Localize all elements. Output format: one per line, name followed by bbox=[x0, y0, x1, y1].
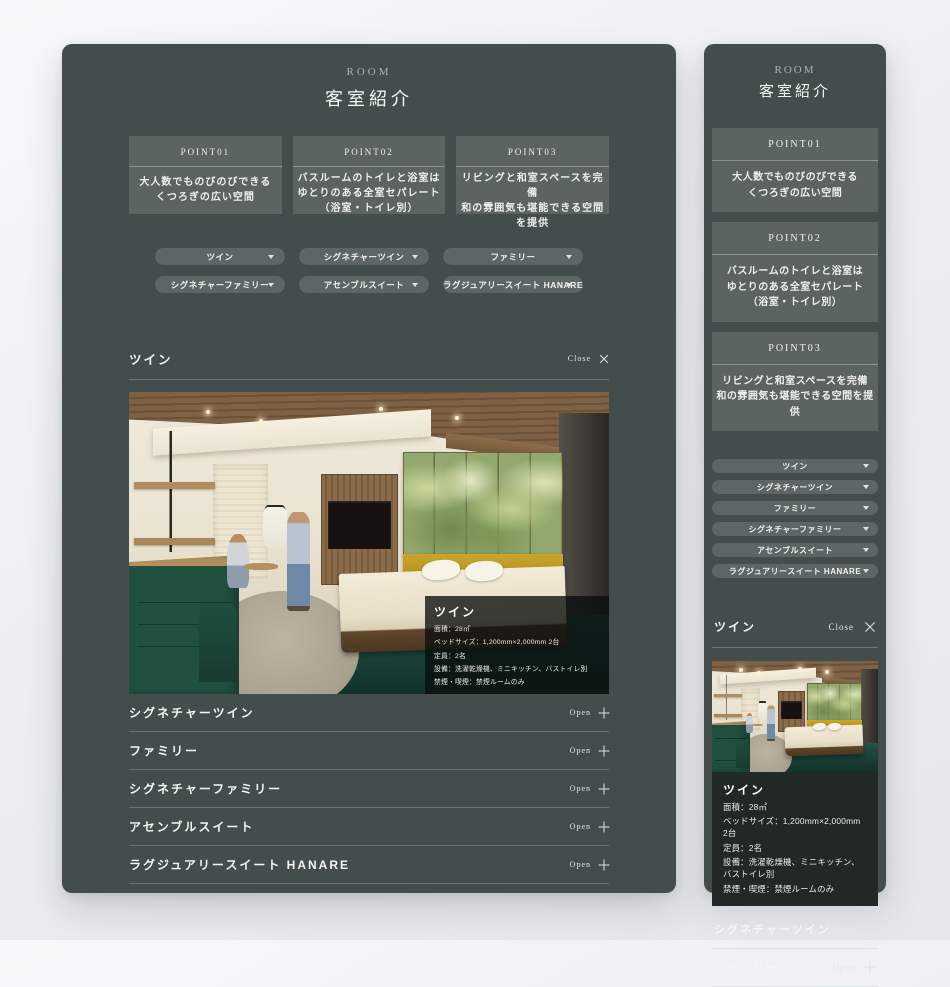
room-spec-facilities: 設備：洗濯乾燥機、ミニキッチン、バストイレ別 bbox=[723, 857, 867, 880]
point-card-03: POINT03 リビングと和室スペースを完備 和の雰囲気も堪能できる空間を提供 bbox=[456, 136, 609, 214]
point-label: POINT03 bbox=[712, 332, 878, 365]
point-body: リビングと和室スペースを完備 和の雰囲気も堪能できる空間を提供 bbox=[712, 365, 878, 432]
open-button[interactable]: Open bbox=[833, 961, 877, 973]
point-label: POINT01 bbox=[129, 136, 282, 167]
room-button-label: ラグジュアリースイート HANARE bbox=[729, 566, 861, 577]
room-button-label: ツイン bbox=[782, 461, 808, 472]
plus-icon bbox=[598, 707, 609, 718]
photo-sliding-door bbox=[861, 669, 878, 747]
accordion-row-signature-twin[interactable]: シグネチャーツイン Open bbox=[129, 694, 609, 732]
open-button[interactable]: Open bbox=[570, 821, 609, 832]
accordion-list: シグネチャーツイン Open ファミリー Open bbox=[712, 911, 878, 987]
room-info-box: ツイン 面積：28㎡ ベッドサイズ：1,200mm×2,000mm 2台 定員：… bbox=[712, 772, 878, 906]
open-button[interactable]: Open bbox=[570, 707, 609, 718]
room-button-label: ファミリー bbox=[774, 503, 817, 514]
point-text-line: 和の雰囲気も堪能できる空間を提供 bbox=[458, 201, 607, 231]
room-info-overlay: ツイン 面積：28㎡ ベッドサイズ：1,200mm×2,000mm 2台 定員：… bbox=[425, 596, 609, 694]
room-button-assemble-suite[interactable]: アセンブルスイート bbox=[712, 543, 878, 557]
photo-sliding-door bbox=[559, 413, 609, 624]
room-anchor-buttons: ツイン シグネチャーツイン ファミリー シグネチャーファミリー アセンブルスイー… bbox=[712, 459, 878, 578]
open-label: Open bbox=[570, 822, 591, 831]
point-text-line: リビングと和室スペースを完備 bbox=[716, 374, 874, 390]
divider bbox=[712, 647, 878, 648]
plus-icon bbox=[864, 961, 876, 973]
section-label: ROOM bbox=[712, 64, 878, 76]
accordion-row-signature-twin[interactable]: シグネチャーツイン Open bbox=[712, 911, 878, 949]
chevron-down-icon bbox=[863, 506, 869, 510]
accordion-row-family[interactable]: ファミリー Open bbox=[712, 949, 878, 987]
room-button-label: ファミリー bbox=[490, 251, 535, 263]
accordion-title: シグネチャーツイン bbox=[714, 921, 831, 937]
point-card-02: POINT02 バスルームのトイレと浴室は ゆとりのある全室セパレート （浴室・… bbox=[712, 222, 878, 322]
room-spec-bed: ベッドサイズ：1,200mm×2,000mm 2台 bbox=[434, 636, 600, 646]
point-text-line: ゆとりのある全室セパレート bbox=[716, 280, 874, 296]
section-label: ROOM bbox=[129, 66, 609, 78]
accordion-row-signature-family[interactable]: シグネチャーファミリー Open bbox=[129, 770, 609, 808]
room-button-label: シグネチャーツイン bbox=[757, 482, 833, 493]
point-text-line: 大人数でものびのびできる bbox=[131, 175, 280, 190]
room-name: ツイン bbox=[434, 603, 600, 620]
room-photo: ツイン 面積：28㎡ ベッドサイズ：1,200mm×2,000mm 2台 定員：… bbox=[129, 392, 609, 694]
photo-downlight bbox=[259, 419, 263, 423]
accordion-title: ラグジュアリースイート HANARE bbox=[129, 856, 350, 873]
accordion-row-luxury-suite-hanare[interactable]: ラグジュアリースイート HANARE Open bbox=[129, 846, 609, 884]
accordion-row-family[interactable]: ファミリー Open bbox=[129, 732, 609, 770]
chevron-down-icon bbox=[412, 255, 418, 259]
room-spec-smoking: 禁煙・喫煙：禁煙ルームのみ bbox=[723, 884, 867, 895]
chevron-down-icon bbox=[863, 485, 869, 489]
photo-downlight bbox=[825, 670, 829, 674]
point-text-line: （浴室・トイレ別） bbox=[295, 201, 444, 216]
point-label: POINT02 bbox=[293, 136, 446, 167]
room-photo-illustration bbox=[712, 661, 878, 772]
room-button-signature-twin[interactable]: シグネチャーツイン bbox=[712, 480, 878, 494]
point-card-01: POINT01 大人数でものびのびできる くつろぎの広い空間 bbox=[712, 128, 878, 212]
plus-icon bbox=[598, 859, 609, 870]
close-label: Close bbox=[828, 622, 854, 632]
room-button-label: シグネチャーファミリー bbox=[749, 524, 842, 535]
accordion-title: ファミリー bbox=[129, 742, 199, 759]
accordion-title: シグネチャーファミリー bbox=[129, 780, 282, 797]
open-label: Open bbox=[833, 962, 857, 972]
accordion-list: シグネチャーツイン Open ファミリー Open シグネチャーファミリー Op… bbox=[129, 694, 609, 884]
accordion-header-twin-open[interactable]: ツイン Close bbox=[129, 349, 609, 368]
open-label: Open bbox=[570, 746, 591, 755]
photo-seated-person bbox=[227, 534, 248, 588]
room-spec-smoking: 禁煙・喫煙：禁煙ルームのみ bbox=[434, 676, 600, 686]
close-button[interactable]: Close bbox=[828, 620, 876, 633]
point-body: バスルームのトイレと浴室は ゆとりのある全室セパレート （浴室・トイレ別） bbox=[293, 167, 446, 222]
room-button-twin[interactable]: ツイン bbox=[712, 459, 878, 473]
room-button-family[interactable]: ファミリー bbox=[443, 248, 583, 265]
point-text-line: バスルームのトイレと浴室は bbox=[716, 264, 874, 280]
room-button-label: シグネチャーファミリー bbox=[171, 279, 269, 291]
close-button[interactable]: Close bbox=[568, 353, 609, 364]
accordion-header-twin-open[interactable]: ツイン Close bbox=[712, 618, 878, 635]
chevron-down-icon bbox=[863, 464, 869, 468]
accordion-title: ツイン bbox=[714, 618, 756, 635]
photo-standing-person bbox=[767, 705, 775, 742]
room-spec-capacity: 定員：2名 bbox=[723, 843, 867, 854]
point-body: 大人数でものびのびできる くつろぎの広い空間 bbox=[129, 167, 282, 214]
accordion-row-assemble-suite[interactable]: アセンブルスイート Open bbox=[129, 808, 609, 846]
close-icon bbox=[598, 353, 609, 364]
point-label: POINT03 bbox=[456, 136, 609, 167]
chevron-down-icon bbox=[863, 527, 869, 531]
room-photo bbox=[712, 661, 878, 772]
chevron-down-icon bbox=[566, 283, 572, 287]
room-button-assemble-suite[interactable]: アセンブルスイート bbox=[299, 276, 429, 293]
accordion-title: シグネチャーツイン bbox=[129, 704, 255, 721]
photo-downlight bbox=[798, 667, 802, 671]
close-label: Close bbox=[568, 354, 591, 363]
photo-hanging-shirt bbox=[758, 703, 766, 719]
desktop-room-section: ROOM 客室紹介 POINT01 大人数でものびのびできる くつろぎの広い空間… bbox=[62, 44, 676, 893]
close-icon bbox=[863, 620, 876, 633]
page-title: 客室紹介 bbox=[712, 80, 878, 101]
open-button[interactable]: Open bbox=[570, 859, 609, 870]
point-text-line: 和の雰囲気も堪能できる空間を提供 bbox=[716, 389, 874, 420]
photo-downlight bbox=[757, 671, 761, 675]
open-label: Open bbox=[833, 924, 857, 934]
photo-downlight bbox=[206, 410, 210, 414]
photo-seated-person bbox=[746, 713, 753, 733]
point-text-line: ゆとりのある全室セパレート bbox=[295, 186, 444, 201]
open-label: Open bbox=[570, 708, 591, 717]
section-header: ROOM 客室紹介 bbox=[712, 44, 878, 101]
photo-shelves bbox=[714, 675, 742, 719]
point-text-line: くつろぎの広い空間 bbox=[131, 190, 280, 205]
point-card-02: POINT02 バスルームのトイレと浴室は ゆとりのある全室セパレート （浴室・… bbox=[293, 136, 446, 214]
photo-shelves bbox=[134, 431, 216, 552]
photo-hanging-shirt bbox=[263, 507, 287, 549]
room-button-label: ラグジュアリースイート HANARE bbox=[443, 279, 583, 291]
room-button-signature-family[interactable]: シグネチャーファミリー bbox=[712, 522, 878, 536]
points-column: POINT01 大人数でものびのびできる くつろぎの広い空間 POINT02 バ… bbox=[712, 128, 878, 431]
divider bbox=[129, 379, 609, 380]
point-label: POINT01 bbox=[712, 128, 878, 161]
room-spec-facilities: 設備：洗濯乾燥機、ミニキッチン、バストイレ別 bbox=[434, 663, 600, 673]
room-name: ツイン bbox=[723, 781, 867, 798]
point-card-03: POINT03 リビングと和室スペースを完備 和の雰囲気も堪能できる空間を提供 bbox=[712, 332, 878, 432]
chevron-down-icon bbox=[268, 283, 274, 287]
room-button-label: ツイン bbox=[206, 251, 233, 263]
open-button[interactable]: Open bbox=[570, 783, 609, 794]
room-button-label: アセンブルスイート bbox=[324, 279, 405, 291]
room-button-label: シグネチャーツイン bbox=[324, 251, 405, 263]
point-text-line: リビングと和室スペースを完備 bbox=[458, 171, 607, 201]
point-body: バスルームのトイレと浴室は ゆとりのある全室セパレート （浴室・トイレ別） bbox=[712, 255, 878, 322]
accordion-title: アセンブルスイート bbox=[129, 818, 254, 835]
open-button[interactable]: Open bbox=[833, 923, 877, 935]
photo-art-panels bbox=[807, 683, 863, 721]
photo-side-table bbox=[244, 563, 278, 570]
chevron-down-icon bbox=[863, 548, 869, 552]
point-card-01: POINT01 大人数でものびのびできる くつろぎの広い空間 bbox=[129, 136, 282, 214]
photo-bench bbox=[199, 603, 237, 682]
section-header: ROOM 客室紹介 bbox=[129, 44, 609, 111]
plus-icon bbox=[598, 783, 609, 794]
plus-icon bbox=[598, 821, 609, 832]
photo-bench bbox=[736, 739, 749, 768]
point-text-line: バスルームのトイレと浴室は bbox=[295, 171, 444, 186]
chevron-down-icon bbox=[268, 255, 274, 259]
photo-tv-screen bbox=[781, 701, 803, 719]
points-row: POINT01 大人数でものびのびできる くつろぎの広い空間 POINT02 バ… bbox=[129, 136, 609, 214]
chevron-down-icon bbox=[863, 569, 869, 573]
room-button-twin[interactable]: ツイン bbox=[155, 248, 285, 265]
point-body: リビングと和室スペースを完備 和の雰囲気も堪能できる空間を提供 bbox=[456, 167, 609, 237]
plus-icon bbox=[598, 745, 609, 756]
photo-standing-person bbox=[287, 511, 310, 611]
chevron-down-icon bbox=[566, 255, 572, 259]
point-body: 大人数でものびのびできる くつろぎの広い空間 bbox=[712, 161, 878, 212]
room-button-luxury-suite-hanare[interactable]: ラグジュアリースイート HANARE bbox=[712, 564, 878, 578]
accordion-title: ファミリー bbox=[714, 959, 779, 975]
page-title: 客室紹介 bbox=[129, 85, 609, 111]
room-button-luxury-suite-hanare[interactable]: ラグジュアリースイート HANARE bbox=[443, 276, 583, 293]
photo-downlight bbox=[379, 407, 383, 411]
room-anchor-buttons: ツイン シグネチャーツイン ファミリー シグネチャーファミリー アセンブルスイー… bbox=[155, 248, 583, 293]
room-button-family[interactable]: ファミリー bbox=[712, 501, 878, 515]
room-button-label: アセンブルスイート bbox=[757, 545, 833, 556]
room-button-signature-twin[interactable]: シグネチャーツイン bbox=[299, 248, 429, 265]
point-text-line: くつろぎの広い空間 bbox=[716, 186, 874, 202]
room-spec-area: 面積：28㎡ bbox=[723, 802, 867, 813]
room-spec-area: 面積：28㎡ bbox=[434, 623, 600, 633]
open-label: Open bbox=[570, 784, 591, 793]
open-button[interactable]: Open bbox=[570, 745, 609, 756]
room-photo-canvas bbox=[712, 661, 878, 772]
point-text-line: （浴室・トイレ別） bbox=[716, 295, 874, 311]
photo-art-panels bbox=[403, 452, 564, 555]
accordion-title: ツイン bbox=[129, 349, 173, 368]
point-text-line: 大人数でものびのびできる bbox=[716, 170, 874, 186]
room-button-signature-family[interactable]: シグネチャーファミリー bbox=[155, 276, 285, 293]
room-spec-bed: ベッドサイズ：1,200mm×2,000mm 2台 bbox=[723, 816, 867, 839]
photo-downlight bbox=[739, 668, 743, 672]
mobile-room-section: ROOM 客室紹介 POINT01 大人数でものびのびできる くつろぎの広い空間… bbox=[704, 44, 886, 893]
plus-icon bbox=[864, 923, 876, 935]
point-label: POINT02 bbox=[712, 222, 878, 255]
chevron-down-icon bbox=[412, 283, 418, 287]
open-label: Open bbox=[570, 860, 591, 869]
room-spec-capacity: 定員：2名 bbox=[434, 650, 600, 660]
page: ROOM 客室紹介 POINT01 大人数でものびのびできる くつろぎの広い空間… bbox=[0, 0, 950, 940]
photo-tv-screen bbox=[328, 501, 390, 549]
photo-bed bbox=[785, 725, 864, 757]
